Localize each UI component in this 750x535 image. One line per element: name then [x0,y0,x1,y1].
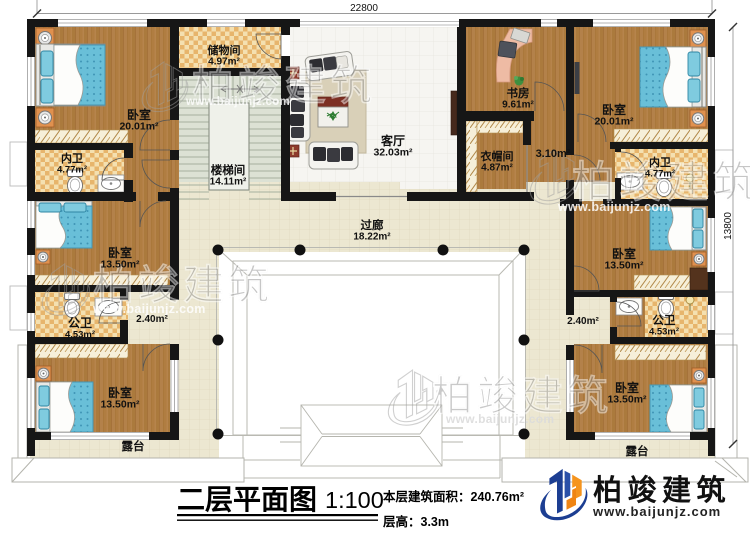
svg-text:20.01m²: 20.01m² [119,121,159,133]
svg-text:www.baijunjz.com: www.baijunjz.com [557,200,671,214]
svg-text:1:100: 1:100 [325,487,384,513]
svg-text:4.53m²: 4.53m² [65,330,95,341]
svg-text:本层建筑面积：240.76m²: 本层建筑面积：240.76m² [383,489,524,504]
svg-text:2.40m²: 2.40m² [136,314,168,325]
svg-text:13.50m²: 13.50m² [607,394,647,406]
svg-text:层高：3.3m: 层高：3.3m [383,514,449,529]
svg-text:4.97m²: 4.97m² [208,57,240,68]
svg-text:书房: 书房 [507,86,530,100]
svg-text:4.87m²: 4.87m² [481,163,513,174]
svg-text:内卫: 内卫 [649,155,671,169]
svg-text:柏竣建筑: 柏竣建筑 [593,473,731,507]
svg-text:20.01m²: 20.01m² [594,116,634,128]
svg-text:13.50m²: 13.50m² [100,259,140,271]
svg-text:二层平面图: 二层平面图 [177,484,317,515]
svg-text:www.baijunjz.com: www.baijunjz.com [445,412,554,426]
svg-text:32.03m²: 32.03m² [373,147,413,159]
svg-text:18.22m²: 18.22m² [353,232,391,243]
svg-text:公卫: 公卫 [653,314,676,327]
svg-text:22800: 22800 [350,3,378,14]
svg-text:露台: 露台 [122,439,145,453]
svg-text:衣帽间: 衣帽间 [481,149,514,163]
svg-text:公卫: 公卫 [68,316,92,330]
svg-text:13800: 13800 [723,212,734,240]
svg-text:2.40m²: 2.40m² [567,316,599,327]
svg-text:过廊: 过廊 [361,218,384,232]
svg-text:4.77m²: 4.77m² [645,169,675,180]
svg-text:9.61m²: 9.61m² [502,100,534,111]
svg-text:www.baijunjz.com: www.baijunjz.com [185,96,290,108]
svg-text:露台: 露台 [626,444,649,458]
svg-text:13.50m²: 13.50m² [100,399,140,411]
svg-text:www.baijunjz.com: www.baijunjz.com [592,504,721,519]
svg-text:储物间: 储物间 [208,43,241,57]
svg-text:3.10m²: 3.10m² [536,148,571,160]
svg-text:内卫: 内卫 [61,151,83,165]
svg-text:楼梯间: 楼梯间 [211,163,246,177]
svg-text:4.77m²: 4.77m² [57,165,87,176]
svg-text:14.11m²: 14.11m² [210,177,247,188]
svg-text:4.53m²: 4.53m² [649,327,679,338]
svg-text:13.50m²: 13.50m² [604,260,644,272]
